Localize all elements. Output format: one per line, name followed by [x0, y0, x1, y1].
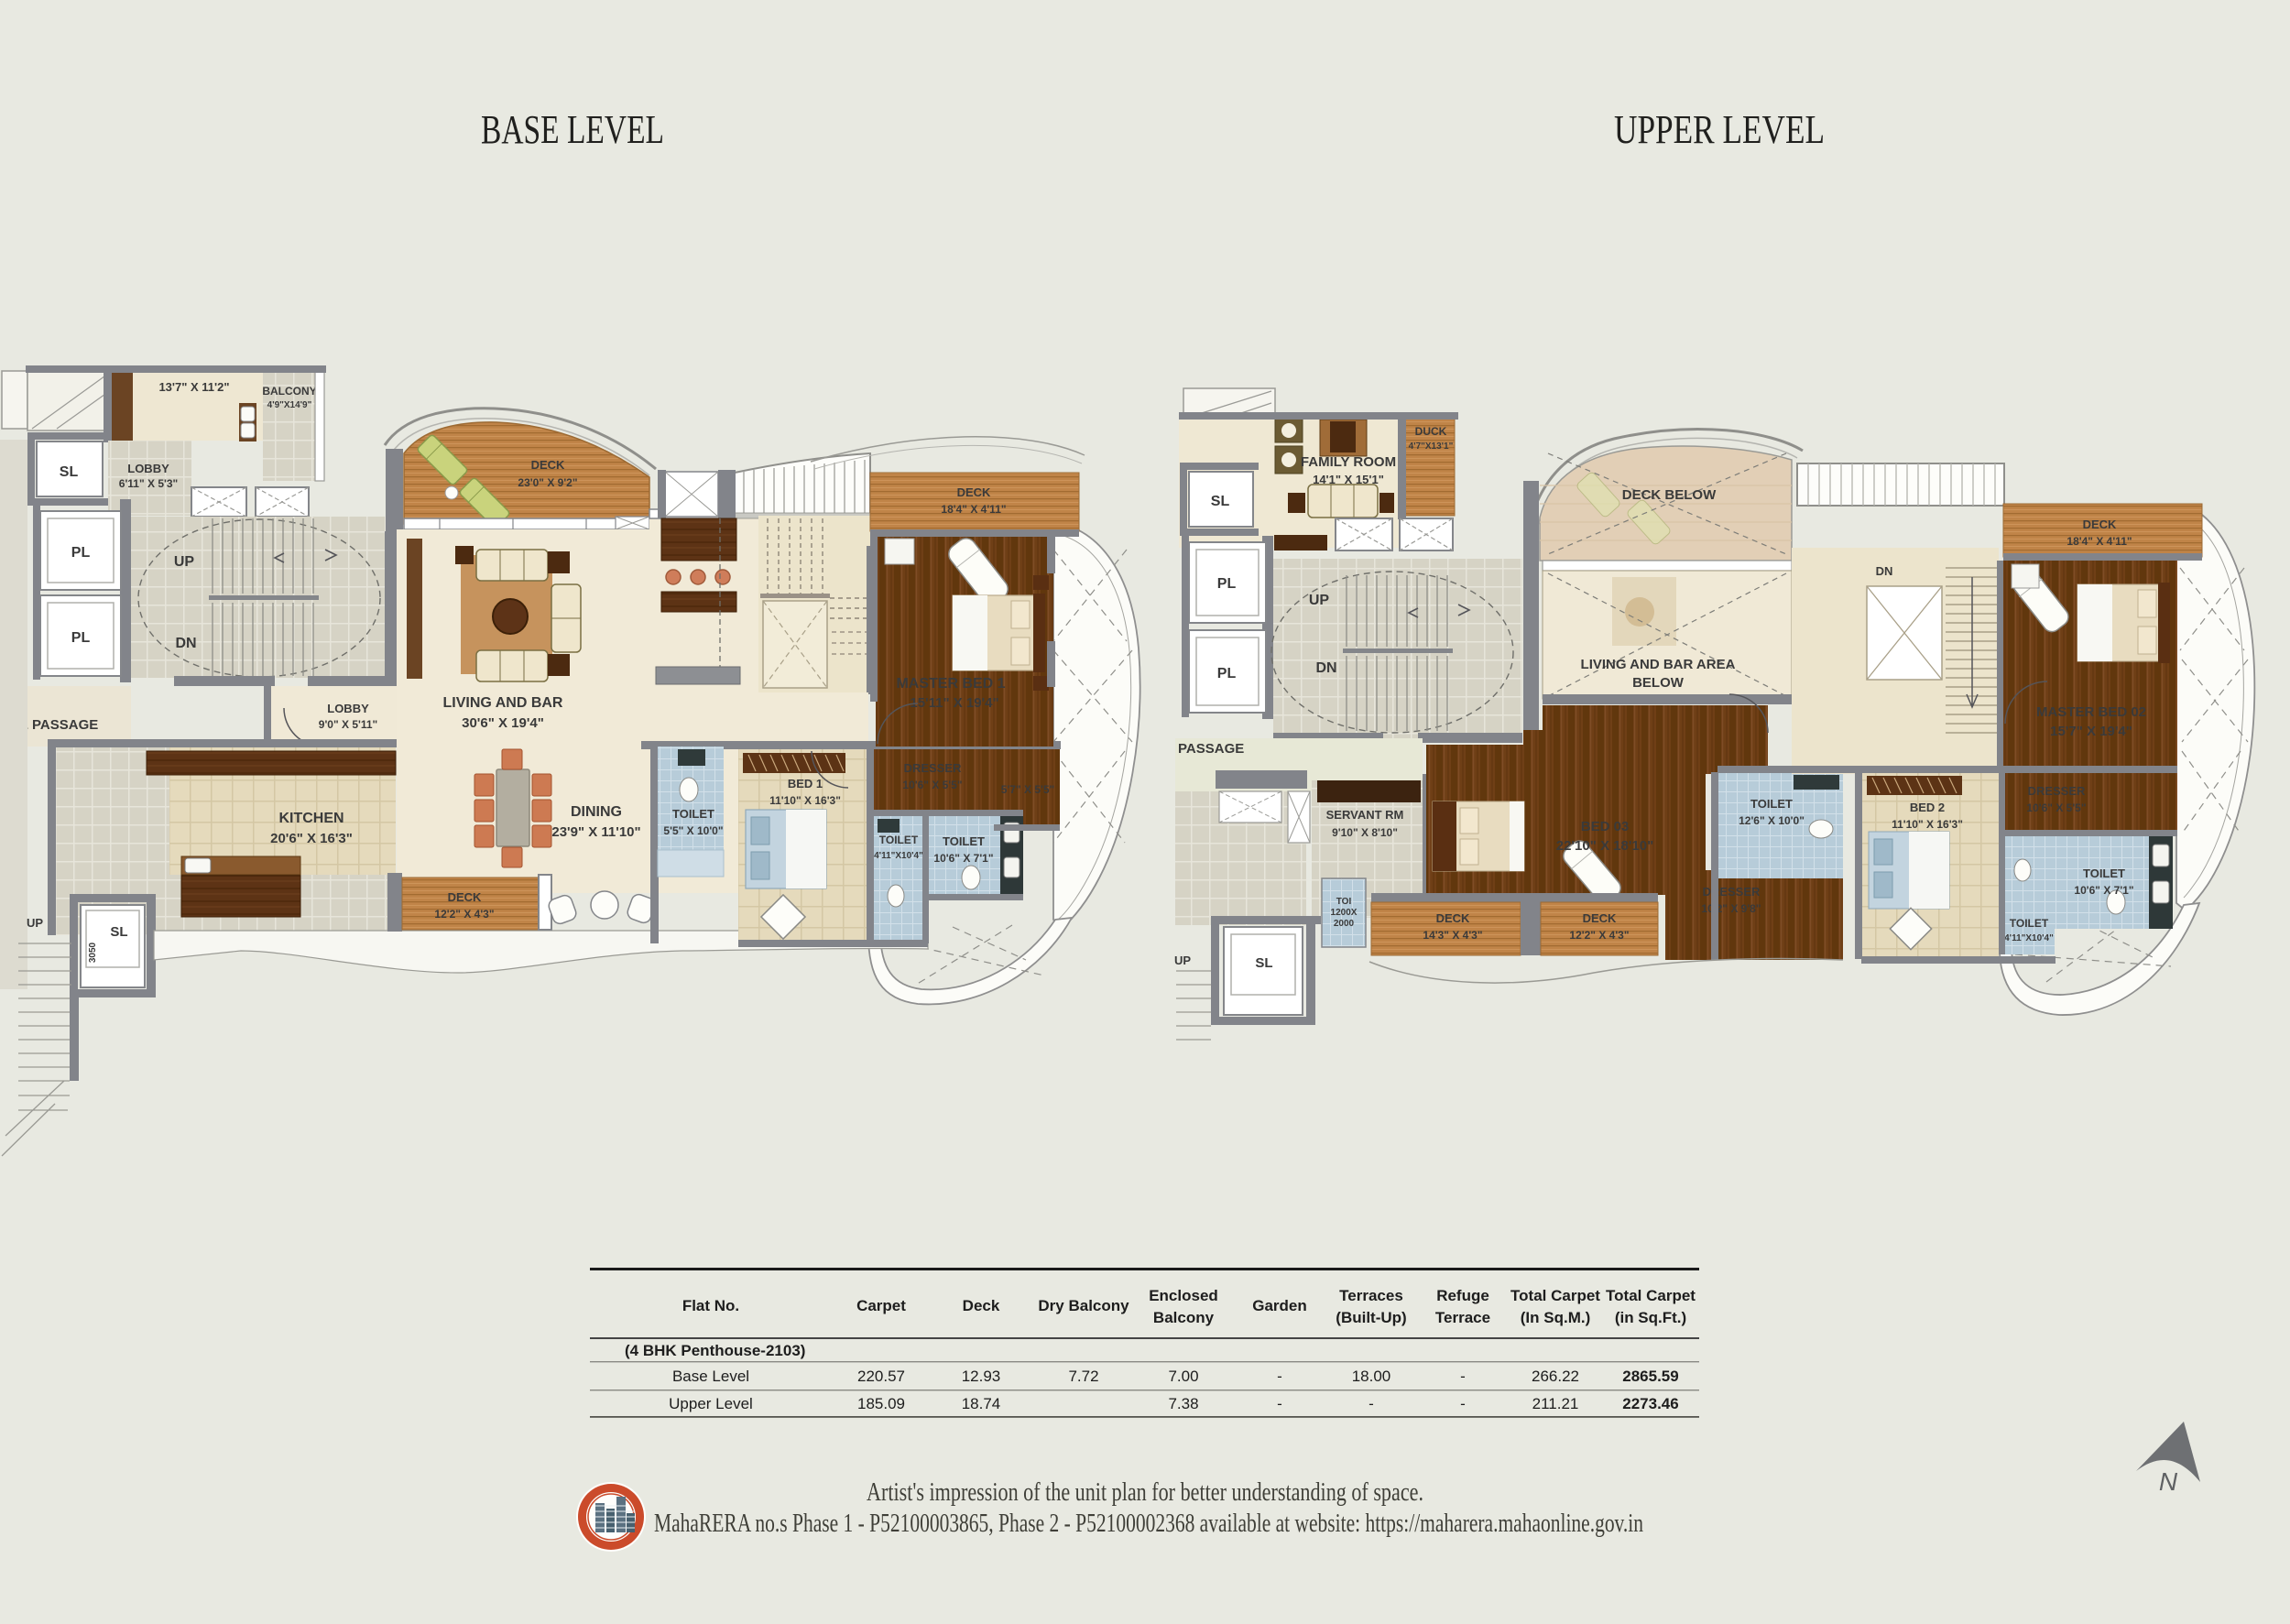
svg-text:PL: PL [1217, 666, 1237, 681]
svg-text:4'9"X14'9": 4'9"X14'9" [267, 400, 312, 410]
svg-text:3050: 3050 [88, 942, 98, 963]
svg-text:23'9" X 11'10": 23'9" X 11'10" [551, 824, 640, 840]
svg-text:Refuge: Refuge [1436, 1287, 1489, 1304]
svg-text:9'10" X 8'10": 9'10" X 8'10" [1332, 826, 1398, 839]
svg-text:DN: DN [1876, 564, 1893, 578]
svg-text:DN: DN [175, 636, 196, 651]
svg-text:MASTER BED 02: MASTER BED 02 [2036, 704, 2146, 720]
svg-text:MASTER BED 1: MASTER BED 1 [896, 676, 1005, 692]
svg-text:(in Sq.Ft.): (in Sq.Ft.) [1615, 1309, 1686, 1326]
svg-text:DUCK: DUCK [1415, 425, 1447, 438]
svg-text:7.00: 7.00 [1168, 1368, 1198, 1385]
svg-text:Flat No.: Flat No. [682, 1297, 739, 1314]
svg-text:LIVING AND BAR AREA: LIVING AND BAR AREA [1581, 657, 1736, 672]
svg-text:Garden: Garden [1252, 1297, 1307, 1314]
svg-text:SERVANT RM: SERVANT RM [1326, 808, 1404, 822]
svg-text:23'0" X 9'2": 23'0" X 9'2" [518, 476, 577, 489]
svg-text:UP: UP [1309, 593, 1330, 608]
svg-text:18.00: 18.00 [1352, 1368, 1391, 1385]
svg-text:BED 1: BED 1 [788, 777, 823, 790]
svg-text:Total Carpet: Total Carpet [1606, 1287, 1696, 1304]
svg-text:(Built-Up): (Built-Up) [1336, 1309, 1406, 1326]
svg-text:-: - [1277, 1368, 1282, 1385]
svg-text:Balcony: Balcony [1153, 1309, 1215, 1326]
svg-text:DECK: DECK [957, 485, 991, 499]
svg-text:7.72: 7.72 [1068, 1368, 1098, 1385]
svg-text:10'6" X 5'5": 10'6" X 5'5" [2026, 801, 2086, 814]
svg-text:9'0" X 5'11": 9'0" X 5'11" [319, 718, 377, 731]
svg-text:12'2" X 4'3": 12'2" X 4'3" [1569, 929, 1629, 942]
svg-text:LIVING AND BAR: LIVING AND BAR [443, 695, 563, 711]
svg-text:TOILET: TOILET [943, 834, 985, 848]
svg-text:-: - [1369, 1395, 1374, 1412]
svg-text:DINING: DINING [571, 804, 622, 820]
svg-text:PL: PL [71, 545, 91, 561]
svg-text:BED 03: BED 03 [1581, 819, 1630, 834]
svg-text:12.93: 12.93 [962, 1368, 1001, 1385]
svg-text:UP: UP [174, 554, 195, 570]
svg-text:-: - [1460, 1395, 1466, 1412]
svg-text:Carpet: Carpet [856, 1297, 906, 1314]
svg-text:DECK: DECK [448, 890, 482, 904]
svg-text:SL: SL [110, 924, 127, 940]
svg-text:FAMILY ROOM: FAMILY ROOM [1301, 454, 1396, 470]
svg-text:DRESSER: DRESSER [904, 761, 962, 775]
svg-text:DRESSER: DRESSER [2028, 784, 2086, 798]
svg-text:Artist's impression of the uni: Artist's impression of the unit plan for… [867, 1478, 1423, 1507]
svg-text:BASE LEVEL: BASE LEVEL [481, 107, 664, 152]
svg-text:10'6" X 7'1": 10'6" X 7'1" [2074, 884, 2133, 897]
svg-text:13'7" X 11'2": 13'7" X 11'2" [158, 380, 229, 394]
svg-text:Terraces: Terraces [1339, 1287, 1403, 1304]
svg-text:12'6" X 10'0": 12'6" X 10'0" [1739, 814, 1805, 827]
svg-text:-: - [1460, 1368, 1466, 1385]
svg-text:Total Carpet: Total Carpet [1510, 1287, 1600, 1304]
svg-text:220.57: 220.57 [857, 1368, 905, 1385]
svg-text:DN: DN [1315, 660, 1336, 676]
svg-text:18.74: 18.74 [962, 1395, 1001, 1412]
svg-text:14'1" X 15'1": 14'1" X 15'1" [1313, 473, 1384, 486]
svg-text:Upper Level: Upper Level [669, 1395, 753, 1412]
svg-text:15'7" X 19'4": 15'7" X 19'4" [2050, 724, 2132, 739]
svg-text:185.09: 185.09 [857, 1395, 905, 1412]
svg-text:BED 2: BED 2 [1910, 801, 1945, 814]
svg-text:14'3" X 4'3": 14'3" X 4'3" [1423, 929, 1482, 942]
svg-text:15'11" X 19'4": 15'11" X 19'4" [910, 695, 998, 711]
svg-text:10'6" X 5'5": 10'6" X 5'5" [902, 779, 962, 791]
svg-text:6'11" X 5'3": 6'11" X 5'3" [119, 477, 178, 490]
svg-text:18'4" X 4'11": 18'4" X 4'11" [941, 503, 1006, 516]
svg-text:2000: 2000 [1334, 919, 1355, 929]
svg-text:1200X: 1200X [1331, 908, 1358, 918]
svg-text:5'5" X 10'0": 5'5" X 10'0" [663, 824, 723, 837]
svg-text:Terrace: Terrace [1435, 1309, 1490, 1326]
svg-text:211.21: 211.21 [1532, 1395, 1579, 1412]
svg-text:PL: PL [1217, 576, 1237, 592]
svg-text:2865.59: 2865.59 [1622, 1368, 1678, 1385]
svg-text:PASSAGE: PASSAGE [1178, 741, 1244, 757]
svg-text:(In Sq.M.): (In Sq.M.) [1521, 1309, 1590, 1326]
svg-text:(4 BHK Penthouse-2103): (4 BHK Penthouse-2103) [625, 1342, 805, 1359]
svg-text:11'10" X 16'3": 11'10" X 16'3" [1892, 818, 1963, 831]
svg-text:UPPER LEVEL: UPPER LEVEL [1614, 107, 1825, 152]
svg-text:PL: PL [71, 630, 91, 646]
svg-text:BALCONY: BALCONY [262, 385, 316, 398]
svg-text:Base Level: Base Level [672, 1368, 749, 1385]
svg-text:5'7" X 5'5": 5'7" X 5'5" [1001, 783, 1054, 796]
svg-text:DECK: DECK [2083, 518, 2117, 531]
svg-text:SL: SL [1255, 955, 1272, 971]
svg-text:KITCHEN: KITCHEN [278, 811, 343, 826]
svg-text:18'4" X 4'11": 18'4" X 4'11" [2066, 535, 2132, 548]
svg-text:UP: UP [27, 916, 43, 930]
svg-text:12'2" X 4'3": 12'2" X 4'3" [434, 908, 494, 921]
svg-text:-: - [1277, 1395, 1282, 1412]
svg-text:UP: UP [1174, 954, 1191, 967]
svg-text:DECK BELOW: DECK BELOW [1622, 487, 1717, 503]
svg-text:MahaRERA no.s Phase 1 - P52100: MahaRERA no.s Phase 1 - P52100003865, Ph… [654, 1510, 1643, 1538]
svg-text:TOILET: TOILET [672, 807, 714, 821]
svg-text:DECK: DECK [531, 458, 565, 472]
svg-text:N: N [2159, 1467, 2178, 1496]
svg-text:Dry Balcony: Dry Balcony [1038, 1297, 1129, 1314]
svg-text:DECK: DECK [1436, 911, 1470, 925]
svg-text:SL: SL [1211, 494, 1230, 509]
svg-text:10'6" X 7'1": 10'6" X 7'1" [933, 852, 993, 865]
svg-text:30'6" X 19'4": 30'6" X 19'4" [462, 715, 544, 731]
svg-text:Deck: Deck [963, 1297, 1000, 1314]
svg-text:7.38: 7.38 [1168, 1395, 1198, 1412]
svg-text:4'7"X13'1": 4'7"X13'1" [1409, 441, 1454, 452]
svg-text:TOILET: TOILET [879, 834, 919, 846]
svg-text:SL: SL [60, 464, 79, 480]
svg-text:11'10" X 16'3": 11'10" X 16'3" [769, 794, 841, 807]
svg-text:TOILET: TOILET [2010, 917, 2049, 930]
svg-text:266.22: 266.22 [1532, 1368, 1579, 1385]
svg-text:TOI: TOI [1336, 897, 1352, 907]
svg-text:20'6" X 16'3": 20'6" X 16'3" [270, 831, 353, 846]
svg-text:4'11"X10'4": 4'11"X10'4" [874, 851, 923, 861]
svg-text:22'10" X 18'10": 22'10" X 18'10" [1556, 838, 1653, 854]
svg-text:LOBBY: LOBBY [127, 462, 169, 475]
svg-text:TOILET: TOILET [1750, 797, 1793, 811]
svg-text:DECK: DECK [1583, 911, 1617, 925]
svg-text:2273.46: 2273.46 [1622, 1395, 1678, 1412]
svg-text:LOBBY: LOBBY [327, 702, 369, 715]
svg-text:Enclosed: Enclosed [1149, 1287, 1218, 1304]
svg-text:4'11"X10'4": 4'11"X10'4" [2004, 933, 2054, 943]
svg-text:10'2" X 9'8": 10'2" X 9'8" [1701, 902, 1761, 915]
svg-text:TOILET: TOILET [2083, 866, 2125, 880]
svg-text:BELOW: BELOW [1632, 675, 1685, 691]
